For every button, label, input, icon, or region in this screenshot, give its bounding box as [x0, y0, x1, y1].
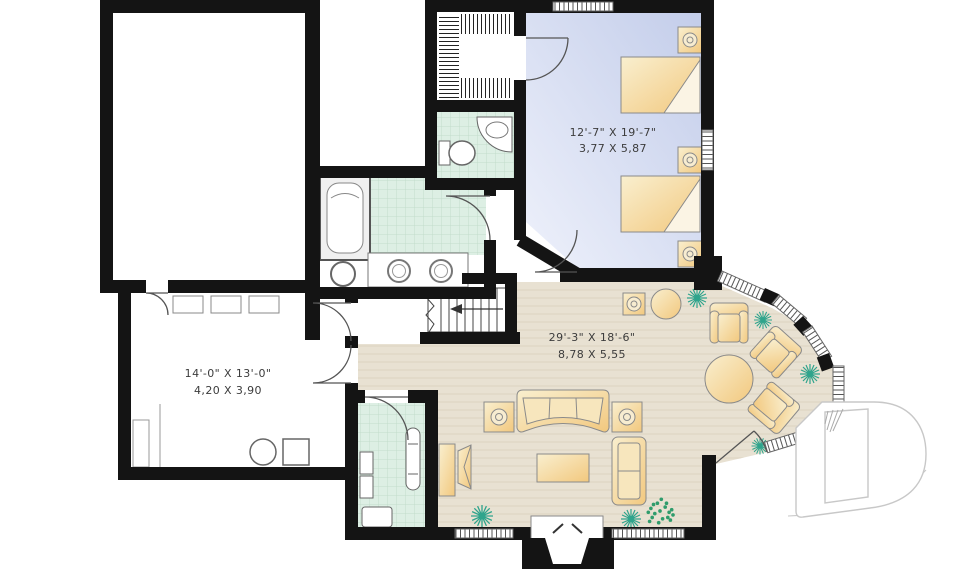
fireplace [522, 516, 614, 569]
shelf-unit [133, 420, 149, 467]
toilet [331, 262, 355, 286]
shelf-box-3 [249, 296, 279, 313]
lamp-table [623, 293, 645, 315]
dryer [360, 476, 373, 498]
furnace [283, 439, 309, 465]
utility-dimensions-metric: 4,20 X 3,90 [194, 384, 262, 397]
clothes-rod-left [439, 14, 459, 98]
living-window-bottom-left [455, 529, 513, 538]
sink-left [388, 260, 410, 282]
shelf-box-1 [173, 296, 203, 313]
living-window-bottom-right [612, 529, 684, 538]
bed-1 [621, 57, 700, 113]
living-dimensions-imperial: 29'-3" X 18'-6" [549, 331, 636, 344]
floor-plan: 12'-7" X 19'-7" 3,77 X 5,87 29'-3" X 18'… [0, 0, 960, 569]
bed-2 [621, 176, 700, 232]
coffee-table [537, 454, 589, 482]
plant-icon [800, 364, 820, 384]
water-heater [250, 439, 276, 465]
plant-icon [621, 509, 641, 529]
nightstand-2 [678, 147, 702, 173]
plant-icon [687, 288, 707, 308]
utility-dimensions-imperial: 14'-0" X 13'-0" [185, 367, 272, 380]
vanity [368, 253, 468, 287]
bedroom-window-top [553, 2, 613, 11]
washer [360, 452, 373, 474]
sink-right [430, 260, 452, 282]
utility-door-2 [313, 345, 351, 383]
nightstand-1 [678, 27, 702, 53]
end-table-left [484, 402, 514, 432]
powder-toilet-bowl [449, 141, 475, 165]
loveseat [612, 437, 646, 505]
armchair-1 [710, 303, 748, 343]
plant-icon [754, 311, 772, 329]
bedroom-dimensions-metric: 3,77 X 5,87 [579, 142, 647, 155]
shelf-box-2 [211, 296, 241, 313]
brand-logo-d-icon [788, 402, 926, 517]
floor-plan-page: 12'-7" X 19'-7" 3,77 X 5,87 29'-3" X 18'… [0, 0, 960, 569]
round-table-large [705, 355, 753, 403]
living-dimensions-metric: 8,78 X 5,55 [558, 348, 626, 361]
storage-door [146, 293, 168, 315]
utility-room-contents [133, 296, 309, 467]
bedroom-dimensions-imperial: 12'-7" X 19'-7" [570, 126, 657, 139]
walk-in-closet [439, 14, 512, 98]
bedroom-window-right [702, 130, 713, 170]
round-table-small [651, 289, 681, 319]
end-table-right [612, 402, 642, 432]
laundry-sink [362, 507, 392, 527]
